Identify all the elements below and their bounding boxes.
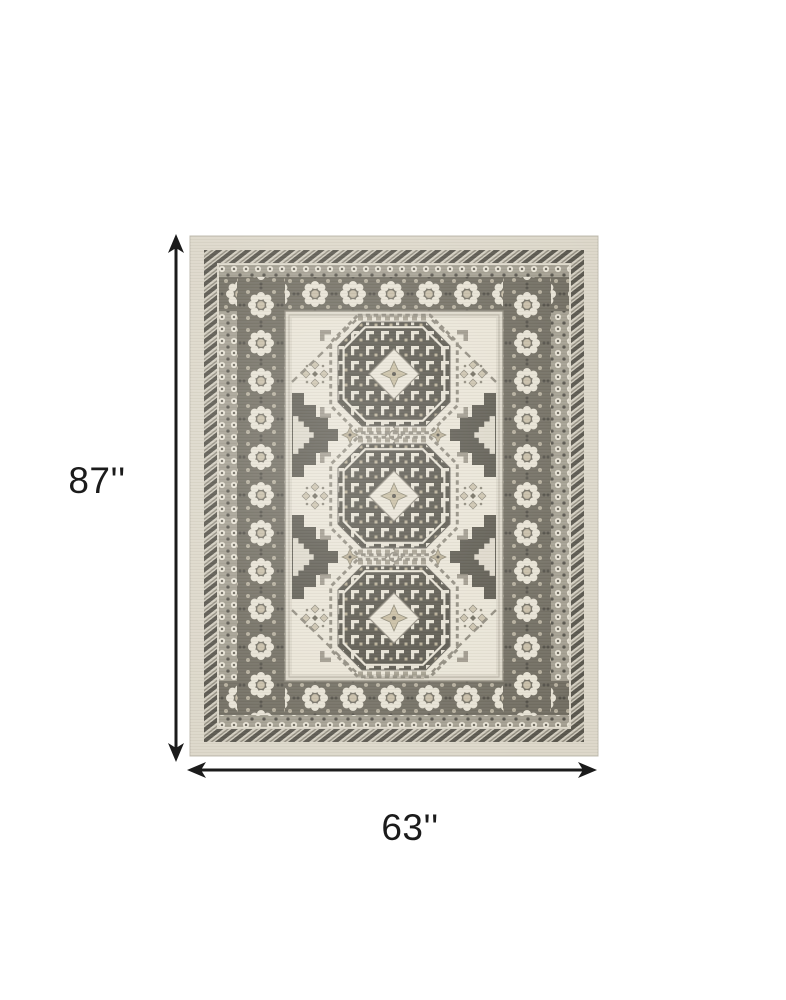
rug-weave-texture [190, 236, 598, 756]
rug-image [190, 236, 598, 756]
rug-dimension-diagram: 87'' 63'' [0, 0, 786, 1000]
width-dimension: 63'' [187, 762, 597, 848]
product-dimension-image: 87'' 63'' [0, 0, 786, 1000]
height-label: 87'' [68, 460, 125, 501]
height-dimension: 87'' [68, 234, 184, 762]
width-label: 63'' [381, 807, 438, 848]
